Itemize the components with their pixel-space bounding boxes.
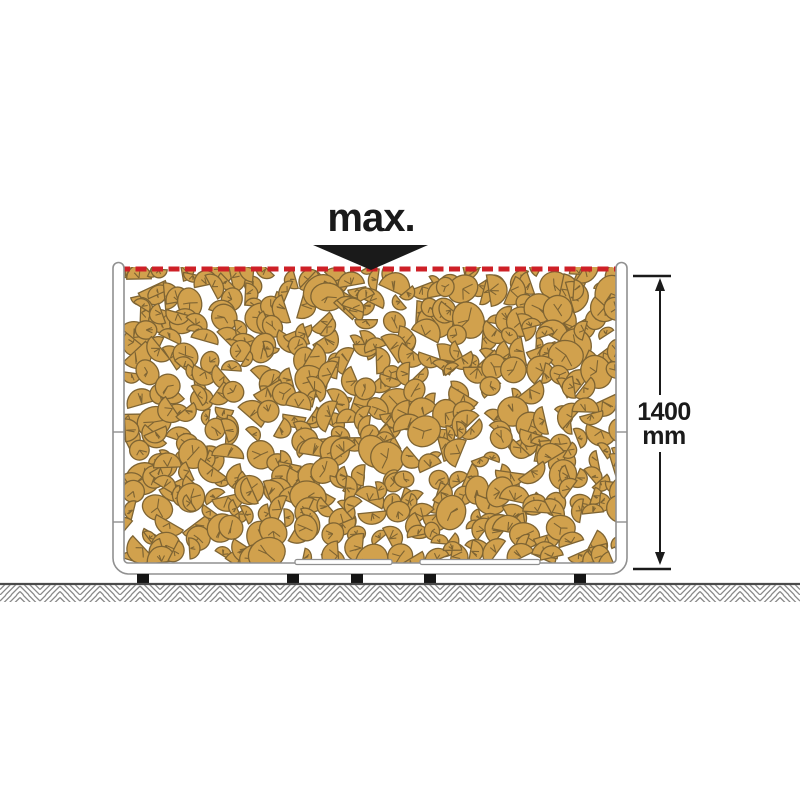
wood-log — [572, 398, 599, 413]
wood-log — [518, 461, 550, 489]
rack-foot — [424, 574, 436, 584]
rack-foot — [287, 574, 299, 584]
wood-log — [284, 508, 295, 526]
dimension-value: 1400 — [608, 400, 720, 424]
rack-foot — [351, 574, 363, 584]
wood-log — [358, 511, 387, 526]
wood-log — [355, 320, 377, 329]
max-arrow-down-icon — [313, 245, 428, 270]
rack-feet — [137, 574, 586, 584]
ground-hatch — [0, 585, 800, 602]
wood-log — [129, 440, 150, 461]
wood-log — [525, 251, 547, 276]
rack-foot — [574, 574, 586, 584]
wood-log — [447, 325, 466, 345]
wood-log — [221, 416, 240, 442]
wood-log — [135, 320, 157, 339]
wood-log — [580, 411, 606, 427]
wood-log — [436, 277, 454, 297]
diagram-canvas: max. 1400 mm — [0, 0, 800, 800]
wood-log — [480, 377, 500, 396]
dimension-unit: mm — [608, 424, 720, 448]
wood-log — [212, 442, 245, 458]
dimension-arrow-up-icon — [655, 278, 665, 291]
rack-foot — [137, 574, 149, 584]
dimension-arrow-down-icon — [655, 552, 665, 565]
dimension-label: 1400 mm — [608, 400, 720, 448]
max-label: max. — [271, 196, 471, 240]
wood-pile — [105, 249, 640, 587]
